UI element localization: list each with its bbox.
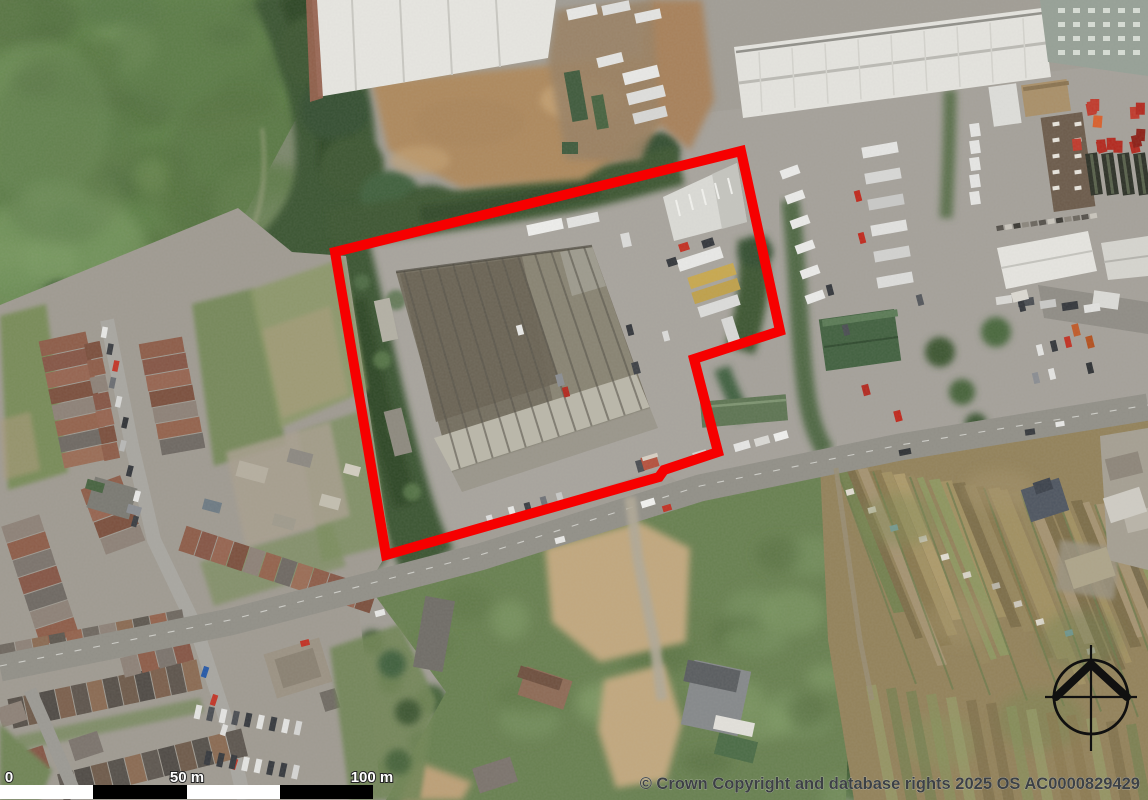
svg-text:50 m: 50 m <box>170 769 204 786</box>
svg-text:0: 0 <box>5 769 13 786</box>
svg-text:100 m: 100 m <box>351 769 394 786</box>
svg-text:© Crown Copyright and database: © Crown Copyright and database rights 20… <box>640 775 1140 793</box>
